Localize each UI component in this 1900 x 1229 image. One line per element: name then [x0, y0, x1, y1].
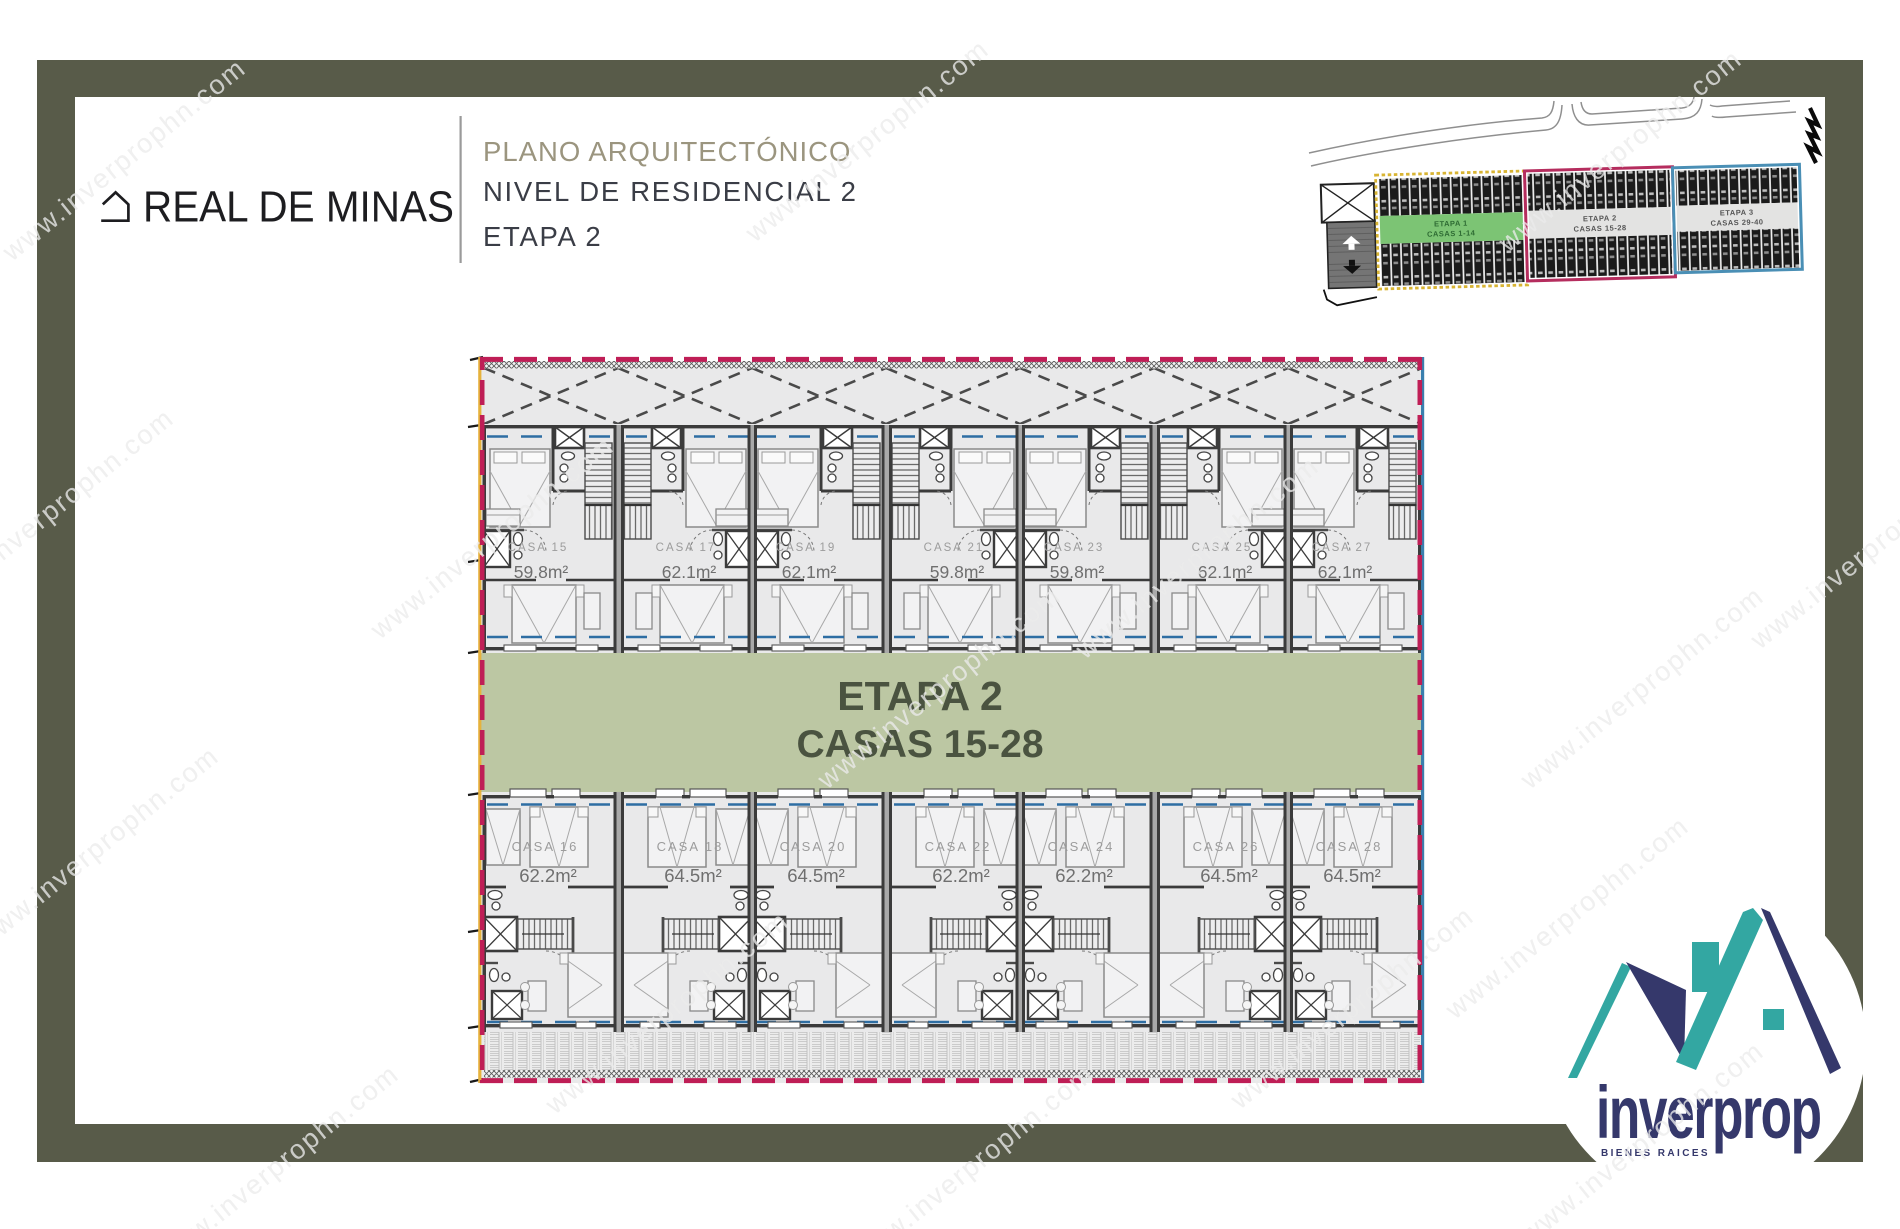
svg-text:CASA 21: CASA 21 [924, 542, 985, 554]
svg-text:62.2m²: 62.2m² [519, 865, 577, 886]
svg-text:CASAS 1-14: CASAS 1-14 [1427, 228, 1476, 238]
svg-text:REAL DE MINAS: REAL DE MINAS [143, 182, 454, 231]
svg-text:CASA 26: CASA 26 [1193, 839, 1260, 854]
svg-text:CASA 16: CASA 16 [512, 839, 579, 854]
svg-text:CASA 24: CASA 24 [1048, 839, 1115, 854]
svg-text:CASA 17: CASA 17 [656, 542, 717, 554]
svg-text:CASAS 29-40: CASAS 29-40 [1710, 217, 1763, 227]
svg-text:59.8m²: 59.8m² [1050, 562, 1105, 582]
svg-text:64.5m²: 64.5m² [1323, 865, 1381, 886]
svg-text:64.5m²: 64.5m² [664, 865, 722, 886]
svg-text:64.5m²: 64.5m² [1200, 865, 1258, 886]
svg-text:ETAPA 1: ETAPA 1 [1434, 219, 1468, 229]
svg-text:CASAS 15-28: CASAS 15-28 [1573, 223, 1626, 233]
svg-text:ETAPA 2: ETAPA 2 [1583, 213, 1617, 223]
svg-text:ETAPA 2: ETAPA 2 [483, 221, 602, 252]
svg-text:62.1m²: 62.1m² [1318, 562, 1373, 582]
svg-text:62.1m²: 62.1m² [662, 562, 717, 582]
svg-text:59.8m²: 59.8m² [514, 562, 569, 582]
svg-text:59.8m²: 59.8m² [930, 562, 985, 582]
svg-text:CASA 28: CASA 28 [1316, 839, 1383, 854]
svg-text:62.2m²: 62.2m² [1055, 865, 1113, 886]
svg-text:PLANO ARQUITECTÓNICO: PLANO ARQUITECTÓNICO [483, 136, 851, 167]
svg-text:64.5m²: 64.5m² [787, 865, 845, 886]
svg-text:CASA 19: CASA 19 [776, 542, 837, 554]
svg-text:CASA 15: CASA 15 [508, 542, 569, 554]
svg-text:ETAPA 3: ETAPA 3 [1720, 208, 1754, 218]
svg-text:CASA 22: CASA 22 [925, 839, 992, 854]
svg-text:62.1m²: 62.1m² [782, 562, 837, 582]
svg-text:CASA 27: CASA 27 [1312, 542, 1373, 554]
svg-text:CASA 23: CASA 23 [1044, 542, 1105, 554]
svg-text:62.2m²: 62.2m² [932, 865, 990, 886]
svg-text:CASA 20: CASA 20 [780, 839, 847, 854]
svg-text:CASA 18: CASA 18 [657, 839, 724, 854]
